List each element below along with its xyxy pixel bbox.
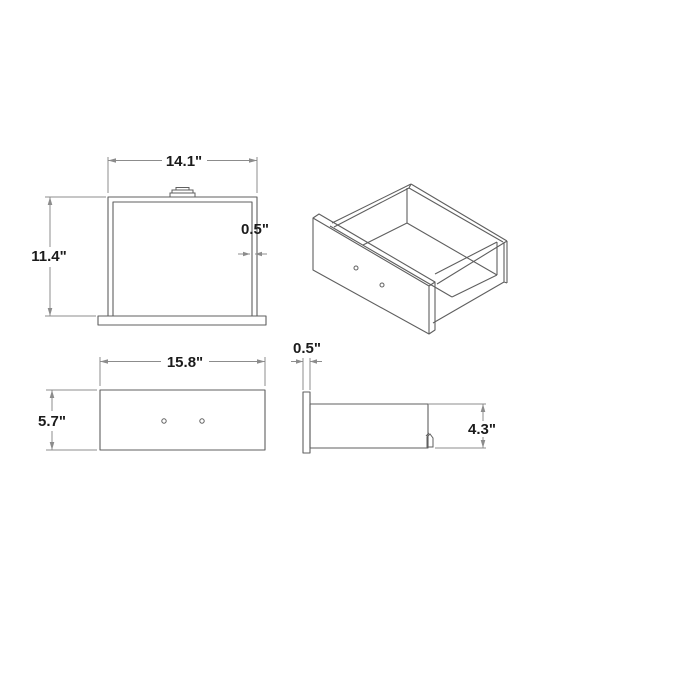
dim-arrow: [481, 404, 486, 412]
iso-front-panel: [313, 214, 435, 334]
dim-arrow: [257, 359, 265, 364]
dim-arrow: [249, 158, 257, 163]
slide-clip: [426, 433, 433, 447]
handle-hole: [162, 419, 166, 423]
dim-arrow: [481, 440, 486, 448]
mounting-clip: [170, 188, 195, 198]
top-view-frame: [108, 197, 257, 316]
dimension-side-height: 4.3": [428, 404, 496, 448]
front-panel-outline: [100, 390, 265, 450]
side-view-side-panel: [310, 404, 428, 448]
handle-hole: [354, 266, 358, 270]
technical-drawing-canvas: 14.1" 11.4" 0.5": [0, 0, 700, 700]
handle-hole: [380, 283, 384, 287]
dim-label-top-width: 14.1": [166, 153, 202, 170]
dim-label-front-width: 15.8": [167, 354, 203, 371]
dim-label-side-thickness: 0.5": [293, 340, 321, 357]
dimension-front-height: 5.7": [38, 390, 97, 450]
dim-arrow: [243, 252, 250, 256]
dimension-top-thickness: 0.5": [238, 221, 269, 256]
dim-arrow: [50, 390, 55, 398]
dim-arrow: [50, 442, 55, 450]
dim-arrow: [255, 252, 262, 256]
dim-label-top-depth: 11.4": [31, 248, 66, 265]
dimension-side-thickness: 0.5": [291, 340, 322, 390]
top-view-front-panel: [98, 316, 266, 325]
dim-label-front-height: 5.7": [38, 413, 66, 430]
dim-arrow: [296, 359, 303, 363]
dim-label-side-height: 4.3": [468, 421, 496, 438]
extension-lines: [303, 358, 310, 390]
side-view-front-panel: [303, 392, 310, 453]
handle-hole: [200, 419, 204, 423]
dim-arrow: [48, 197, 53, 205]
iso-side-back-panels: [332, 184, 507, 323]
drawing-svg: 14.1" 11.4" 0.5": [0, 0, 700, 700]
dim-label-top-thickness: 0.5": [241, 221, 269, 238]
dim-arrow: [108, 158, 116, 163]
dimension-front-width: 15.8": [100, 354, 265, 386]
dim-arrow: [48, 308, 53, 316]
dim-arrow: [310, 359, 317, 363]
dimension-top-depth: 11.4": [31, 197, 106, 316]
side-view: 0.5" 4.3": [291, 340, 496, 453]
top-view: 14.1" 11.4" 0.5": [31, 153, 269, 325]
iso-interior-bottom: [330, 223, 497, 297]
front-view: 15.8" 5.7": [38, 354, 265, 450]
dim-arrow: [100, 359, 108, 364]
isometric-view: [313, 184, 507, 334]
